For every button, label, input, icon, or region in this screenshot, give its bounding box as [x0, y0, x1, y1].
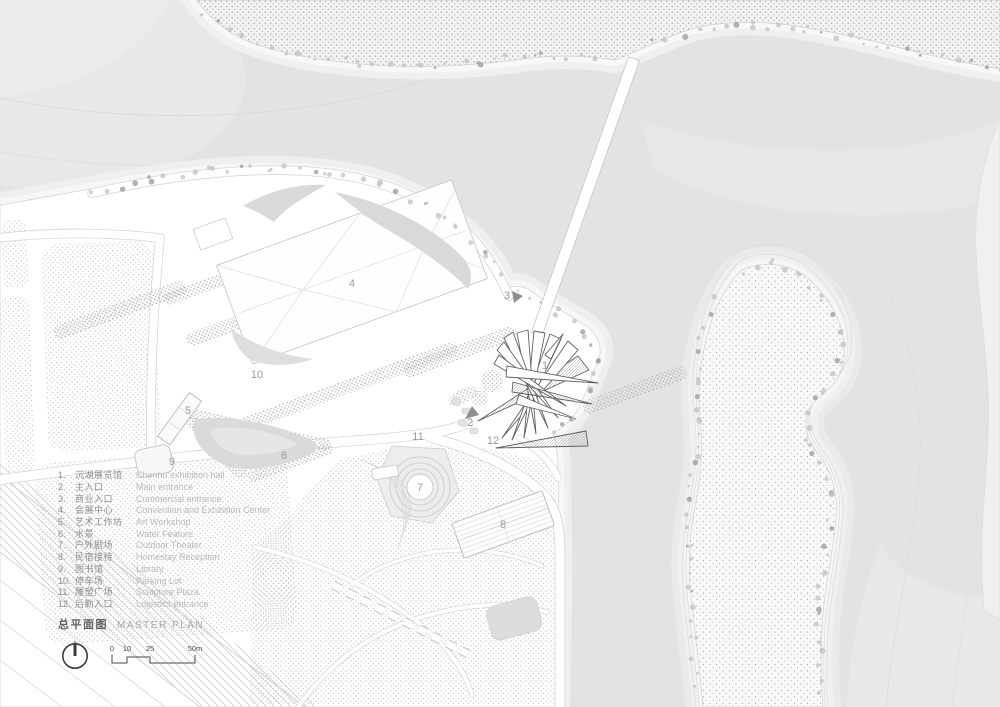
tree-symbol: [826, 518, 829, 521]
legend-item: 5.艺术工作坊Art Workshop: [58, 517, 338, 529]
tree-symbol: [819, 648, 825, 654]
tree-symbol: [503, 53, 508, 58]
tree-symbol: [790, 26, 795, 31]
tree-symbol: [970, 59, 973, 62]
tree-symbol: [270, 168, 273, 171]
tree-symbol: [693, 685, 696, 688]
tree-symbol: [690, 544, 693, 547]
tree-symbol: [826, 554, 829, 557]
tree-symbol: [817, 691, 821, 695]
plan-number-label: 9: [169, 456, 175, 468]
tree-symbol: [698, 433, 700, 435]
tree-symbol: [464, 59, 469, 64]
legend-item-zh: 会展中心: [75, 506, 136, 515]
tree-symbol: [298, 166, 302, 170]
tree-symbol: [755, 265, 761, 271]
legend-item-zh: 主入口: [75, 483, 136, 492]
tree-symbol: [696, 336, 700, 340]
tree-symbol: [686, 545, 689, 548]
tree-symbol: [314, 170, 319, 175]
tree-symbol: [281, 163, 286, 168]
tree-symbol: [426, 202, 429, 205]
tree-symbol: [817, 640, 821, 644]
tree-symbol: [256, 43, 259, 46]
tree-symbol: [323, 172, 326, 175]
tree-symbol: [695, 394, 700, 399]
tree-symbol: [181, 175, 186, 180]
tree-symbol: [443, 215, 447, 219]
tree-symbol: [709, 312, 714, 317]
master-plan-canvas: 123456789101112 1.沉湖展览馆Chenhu exhibition…: [0, 0, 1000, 707]
legend-item-num: 5.: [58, 518, 75, 527]
tree-symbol: [820, 31, 823, 34]
legend-item-zh: 水景: [75, 530, 136, 539]
tree-symbol: [816, 663, 820, 667]
tree-symbol: [534, 54, 536, 56]
legend-item-en: Outdoor Theater: [136, 541, 202, 550]
tree-symbol: [560, 422, 564, 426]
tree-symbol: [776, 23, 781, 28]
tree-symbol: [696, 380, 701, 385]
tree-symbol: [930, 51, 933, 54]
scale-bar: 0 10 25 50m: [108, 642, 218, 672]
legend-item: 4.会展中心Convention and Exhibition Center: [58, 505, 338, 517]
tree-symbol: [592, 56, 597, 61]
tree-symbol: [553, 312, 558, 317]
legend: 1.沉湖展览馆Chenhu exhibition hall2.主入口Main e…: [58, 470, 338, 673]
tree-symbol: [806, 25, 809, 28]
tree-symbol: [517, 289, 520, 292]
tree-symbol: [765, 27, 769, 31]
tree-symbol: [724, 24, 729, 29]
legend-item-zh: 艺术工作坊: [75, 518, 136, 527]
tree-symbol: [377, 179, 383, 185]
tree-symbol: [682, 34, 688, 40]
tree-symbol: [905, 46, 910, 51]
legend-item-en: Parking Lot: [136, 577, 182, 586]
tree-symbol: [829, 504, 832, 507]
tree-symbol: [712, 27, 716, 31]
tree-symbol: [796, 271, 800, 275]
legend-item-en: Library: [136, 565, 164, 574]
tree-symbol: [499, 272, 503, 276]
tree-symbol: [132, 180, 138, 186]
tree-symbol: [248, 164, 252, 168]
legend-item-num: 2.: [58, 483, 75, 492]
tree-symbol: [820, 299, 823, 302]
tree-symbol: [688, 485, 691, 488]
tree-symbol: [149, 179, 155, 185]
tree-symbol: [815, 595, 820, 600]
tree-symbol: [357, 64, 361, 68]
tree-symbol: [742, 272, 745, 275]
tree-symbol: [696, 349, 701, 354]
plan-number-label: 12: [487, 435, 499, 447]
tree-symbol: [572, 418, 575, 421]
legend-item: 10.停车场Parking Lot: [58, 575, 338, 587]
tree-symbol: [697, 446, 700, 449]
legend-item-num: 6.: [58, 530, 75, 539]
legend-item-en: Homestay Reception: [136, 553, 220, 562]
tree-symbol: [684, 512, 688, 516]
tree-symbol: [270, 45, 275, 50]
tree-symbol: [916, 50, 919, 53]
legend-item-num: 4.: [58, 506, 75, 515]
tree-symbol: [751, 20, 755, 24]
legend-item-en: Commercial entrance: [136, 495, 222, 504]
plan-number-label: 10: [251, 369, 263, 381]
tree-symbol: [819, 461, 822, 464]
tree-symbol: [694, 407, 700, 413]
legend-item: 11.雕塑广场Sculpture Plaza: [58, 587, 338, 599]
tree-symbol: [313, 58, 316, 61]
legend-item-num: 3.: [58, 495, 75, 504]
tree-symbol: [699, 28, 702, 31]
peninsula-land: [683, 244, 852, 707]
tree-symbol: [804, 438, 808, 442]
tree-symbol: [733, 22, 739, 28]
legend-item-zh: 图书馆: [75, 565, 136, 574]
tree-symbol: [807, 425, 813, 431]
tree-symbol: [696, 672, 699, 675]
tree-symbol: [816, 584, 821, 589]
legend-item-zh: 雕塑广场: [75, 588, 136, 597]
tree-symbol: [813, 395, 818, 400]
tree-symbol: [817, 612, 820, 615]
tree-symbol: [147, 175, 151, 179]
tree-symbol: [782, 267, 788, 273]
tree-symbol: [830, 371, 835, 376]
tree-symbol: [580, 329, 585, 334]
tree-symbol: [802, 30, 805, 33]
tree-symbol: [417, 63, 421, 67]
tree-symbol: [687, 497, 692, 502]
tree-symbol: [589, 343, 592, 346]
tree-symbol: [341, 173, 346, 178]
plan-number-label: 8: [500, 519, 506, 531]
legend-item-zh: 商业入口: [75, 495, 136, 504]
legend-item-en: Sculpture Plaza: [136, 588, 199, 597]
tree-symbol: [591, 371, 596, 376]
plan-number-label: 2: [467, 417, 473, 429]
legend-rows: 1.沉湖展览馆Chenhu exhibition hall2.主入口Main e…: [58, 470, 338, 610]
scale-label-50m: 50m: [188, 644, 203, 653]
tree-symbol: [858, 37, 861, 40]
legend-item-zh: 停车场: [75, 577, 136, 586]
tree-symbol: [685, 525, 689, 529]
scale-label-10: 10: [123, 644, 131, 653]
plan-number-label: 4: [349, 278, 355, 290]
tree-symbol: [822, 571, 827, 576]
tree-symbol: [160, 173, 165, 178]
tree-symbol: [370, 62, 375, 67]
legend-item-zh: 户外剧场: [75, 541, 136, 550]
tree-symbol: [540, 301, 542, 303]
tree-symbol: [596, 359, 601, 364]
plan-number-label: 1: [542, 360, 548, 372]
tree-symbol: [528, 297, 531, 300]
tree-symbol: [689, 557, 693, 561]
tree-symbol: [694, 636, 698, 640]
tree-symbol: [120, 187, 125, 192]
legend-item-en: Convention and Exhibition Center: [136, 506, 270, 515]
tree-symbol: [217, 19, 221, 23]
legend-item: 9.图书馆Library: [58, 564, 338, 576]
tree-symbol: [553, 57, 555, 59]
tree-symbol: [582, 334, 587, 339]
legend-item-zh: 沉湖展览馆: [75, 471, 136, 480]
tree-symbol: [875, 45, 878, 48]
tree-symbol: [552, 430, 556, 434]
tree-symbol: [820, 679, 824, 683]
legend-footer: 0 10 25 50m: [58, 639, 338, 673]
legend-item-num: 7.: [58, 541, 75, 550]
plan-number-label: 7: [417, 482, 423, 494]
tree-symbol: [193, 169, 199, 175]
tree-symbol: [829, 491, 835, 497]
tree-symbol: [985, 65, 989, 69]
tree-symbol: [689, 657, 694, 662]
legend-item-zh: 民宿接待: [75, 553, 136, 562]
legend-item: 7.户外剧场Outdoor Theater: [58, 540, 338, 552]
legend-item: 8.民宿接待Homestay Reception: [58, 552, 338, 564]
legend-item-num: 9.: [58, 565, 75, 574]
tree-symbol: [830, 312, 835, 317]
tree-symbol: [919, 54, 922, 57]
tree-symbol: [824, 477, 828, 481]
plan-title: 总平面图 MASTER PLAN: [58, 616, 338, 630]
tree-symbol: [809, 451, 814, 456]
tree-symbol: [295, 51, 301, 57]
tree-symbol: [830, 526, 835, 531]
tree-symbol: [771, 258, 774, 261]
legend-item-en: Water Feature: [136, 530, 193, 539]
tree-symbol: [522, 54, 527, 59]
tree-symbol: [434, 66, 437, 69]
tree-symbol: [240, 165, 244, 169]
tree-symbol: [808, 443, 812, 447]
tree-symbol: [835, 358, 840, 363]
tree-symbol: [444, 62, 447, 65]
tree-symbol: [239, 33, 244, 38]
tree-symbol: [750, 25, 756, 31]
tree-symbol: [690, 604, 696, 610]
tree-symbol: [840, 361, 843, 364]
tree-symbol: [468, 240, 473, 245]
tree-symbol: [454, 223, 457, 226]
tree-symbol: [572, 319, 577, 324]
tree-symbol: [556, 306, 561, 311]
legend-item: 2.主入口Main entrance: [58, 482, 338, 494]
tree-symbol: [688, 473, 692, 477]
legend-item: 3.商业入口Commercial entrance: [58, 493, 338, 505]
legend-item: 1.沉湖展览馆Chenhu exhibition hall: [58, 470, 338, 482]
tree-symbol: [588, 388, 593, 393]
tree-symbol: [436, 213, 442, 219]
north-arrow-icon: [58, 639, 92, 673]
tree-symbol: [688, 572, 690, 574]
plan-number-label: 5: [185, 405, 191, 417]
tree-symbol: [226, 170, 230, 174]
tree-symbol: [689, 635, 692, 638]
tree-symbol: [821, 544, 827, 550]
tree-symbol: [344, 56, 348, 60]
tree-symbol: [805, 411, 809, 415]
tree-symbol: [693, 460, 699, 466]
legend-item-num: 11.: [58, 588, 75, 597]
tree-symbol: [819, 294, 823, 298]
tree-symbol: [200, 13, 203, 16]
plan-number-label: 6: [281, 450, 287, 462]
tree-symbol: [689, 619, 693, 623]
legend-item-en: Chenhu exhibition hall: [136, 471, 225, 480]
plan-number-label: 11: [412, 431, 423, 443]
plan-number-label: 3: [504, 290, 510, 302]
legend-item: 12.后勤入口Logistics entrance: [58, 599, 338, 611]
tree-symbol: [696, 417, 701, 422]
tree-symbol: [712, 294, 718, 300]
legend-item-num: 1.: [58, 471, 75, 480]
tree-symbol: [285, 52, 289, 56]
tree-symbol: [686, 585, 691, 590]
legend-item: 6.水景Water Feature: [58, 528, 338, 540]
tree-symbol: [941, 53, 944, 56]
tree-symbol: [361, 176, 367, 182]
tree-symbol: [105, 189, 110, 194]
plan-title-en: MASTER PLAN: [117, 620, 204, 631]
tree-symbol: [393, 189, 399, 195]
tree-symbol: [483, 254, 488, 259]
tree-symbol: [956, 57, 962, 63]
tree-symbol: [327, 172, 332, 177]
tree-symbol: [701, 326, 705, 330]
legend-item-en: Logistics entrance: [136, 600, 209, 609]
tree-symbol: [816, 607, 822, 613]
tree-symbol: [355, 60, 359, 64]
tree-symbol: [564, 57, 568, 61]
tree-symbol: [691, 590, 694, 593]
tree-symbol: [388, 61, 394, 67]
tree-symbol: [807, 286, 811, 290]
legend-item-en: Main entrance: [136, 483, 193, 492]
tree-symbol: [840, 342, 846, 348]
tree-symbol: [228, 27, 233, 32]
tree-symbol: [699, 368, 702, 371]
tree-symbol: [862, 43, 865, 46]
tree-symbol: [494, 58, 496, 60]
tree-symbol: [478, 62, 484, 68]
legend-item-num: 12.: [58, 600, 75, 609]
legend-item-en: Art Workshop: [136, 518, 190, 527]
scale-label-25: 25: [146, 644, 154, 653]
tree-symbol: [580, 53, 583, 56]
tree-symbol: [207, 166, 212, 171]
tree-symbol: [89, 190, 93, 194]
legend-item-zh: 后勤入口: [75, 600, 136, 609]
tree-symbol: [408, 199, 413, 204]
plan-title-zh: 总平面图: [58, 616, 108, 632]
scale-label-0: 0: [110, 644, 114, 653]
tree-symbol: [849, 32, 854, 37]
tree-symbol: [651, 38, 654, 41]
tree-symbol: [539, 51, 543, 55]
tree-symbol: [695, 454, 701, 460]
tree-symbol: [662, 37, 668, 43]
legend-item-num: 10.: [58, 577, 75, 586]
tree-symbol: [834, 36, 840, 42]
tree-symbol: [838, 329, 844, 335]
tree-symbol: [814, 622, 819, 627]
tree-symbol: [821, 388, 826, 393]
legend-item-num: 8.: [58, 553, 75, 562]
tree-symbol: [493, 260, 496, 263]
tree-symbol: [886, 46, 889, 49]
tree-symbol: [402, 63, 406, 67]
tree-symbol: [326, 57, 330, 61]
tree-symbol: [575, 401, 578, 404]
